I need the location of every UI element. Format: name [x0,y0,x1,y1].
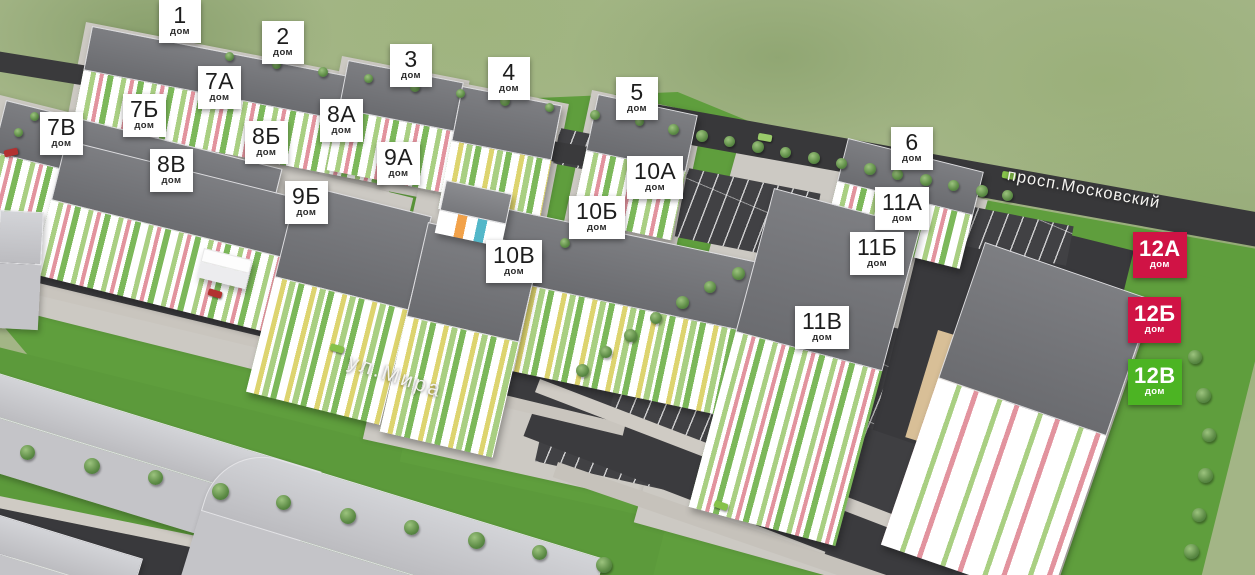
building-label-3[interactable]: 3 дом [390,44,432,87]
building-label-caption: дом [252,148,281,159]
building-label-caption: дом [857,259,897,270]
building-label-caption: дом [269,48,297,59]
building-label-number: 8В [157,153,186,176]
building-label-caption: дом [130,121,159,132]
building-label-caption: дом [634,183,676,194]
building-label-number: 12А [1139,238,1181,260]
building-label-number: 11Б [857,236,897,259]
building-labels-layer: 1 дом 2 дом 3 дом 4 дом 5 дом 6 дом 7А д… [0,0,1255,575]
building-label-caption: дом [1139,260,1181,271]
building-label-caption: дом [384,169,413,180]
building-label-number: 7В [47,116,76,139]
building-label-caption: дом [802,333,842,344]
building-label-number: 6 [898,131,926,154]
building-label-number: 8А [327,103,356,126]
building-label-1[interactable]: 1 дом [159,0,201,43]
building-label-7a[interactable]: 7А дом [198,66,241,109]
building-label-caption: дом [576,223,618,234]
building-label-number: 10А [634,160,676,183]
building-label-11v[interactable]: 11В дом [795,306,849,349]
building-label-caption: дом [882,214,922,225]
building-label-number: 4 [495,61,523,84]
building-label-caption: дом [47,139,76,150]
building-label-number: 7А [205,70,234,93]
building-label-4[interactable]: 4 дом [488,57,530,100]
building-label-10b[interactable]: 10Б дом [569,196,625,239]
building-label-number: 3 [397,48,425,71]
building-label-6[interactable]: 6 дом [891,127,933,170]
building-label-8a[interactable]: 8А дом [320,99,363,142]
building-label-7b[interactable]: 7Б дом [123,94,166,137]
building-label-caption: дом [205,93,234,104]
building-label-5[interactable]: 5 дом [616,77,658,120]
building-label-caption: дом [623,104,651,115]
building-label-caption: дом [157,176,186,187]
building-label-9a[interactable]: 9А дом [377,142,420,185]
building-label-10v[interactable]: 10В дом [486,240,542,283]
site-plan: ул.Мира просп.Московский 1 дом 2 дом 3 д… [0,0,1255,575]
building-label-number: 9А [384,146,413,169]
building-label-2[interactable]: 2 дом [262,21,304,64]
building-label-7v[interactable]: 7В дом [40,112,83,155]
building-label-12v[interactable]: 12В дом [1128,359,1182,405]
building-label-caption: дом [493,267,535,278]
building-label-caption: дом [898,154,926,165]
building-label-12a[interactable]: 12А дом [1133,232,1187,278]
building-label-number: 9Б [292,185,321,208]
building-label-number: 8Б [252,125,281,148]
building-label-number: 7Б [130,98,159,121]
building-label-caption: дом [397,71,425,82]
building-label-caption: дом [292,208,321,219]
building-label-caption: дом [495,84,523,95]
building-label-caption: дом [1134,325,1175,336]
building-label-number: 10Б [576,200,618,223]
building-label-number: 12В [1134,365,1176,387]
building-label-caption: дом [1134,387,1176,398]
building-label-8v[interactable]: 8В дом [150,149,193,192]
building-label-caption: дом [327,126,356,137]
building-label-11b[interactable]: 11Б дом [850,232,904,275]
building-label-number: 11В [802,310,842,333]
building-label-number: 1 [166,4,194,27]
building-label-number: 10В [493,244,535,267]
building-label-caption: дом [166,27,194,38]
building-label-11a[interactable]: 11А дом [875,187,929,230]
building-label-8b[interactable]: 8Б дом [245,121,288,164]
building-label-9b[interactable]: 9Б дом [285,181,328,224]
building-label-number: 2 [269,25,297,48]
building-label-number: 11А [882,191,922,214]
building-label-10a[interactable]: 10А дом [627,156,683,199]
building-label-number: 12Б [1134,303,1175,325]
building-label-number: 5 [623,81,651,104]
building-label-12b[interactable]: 12Б дом [1128,297,1181,343]
